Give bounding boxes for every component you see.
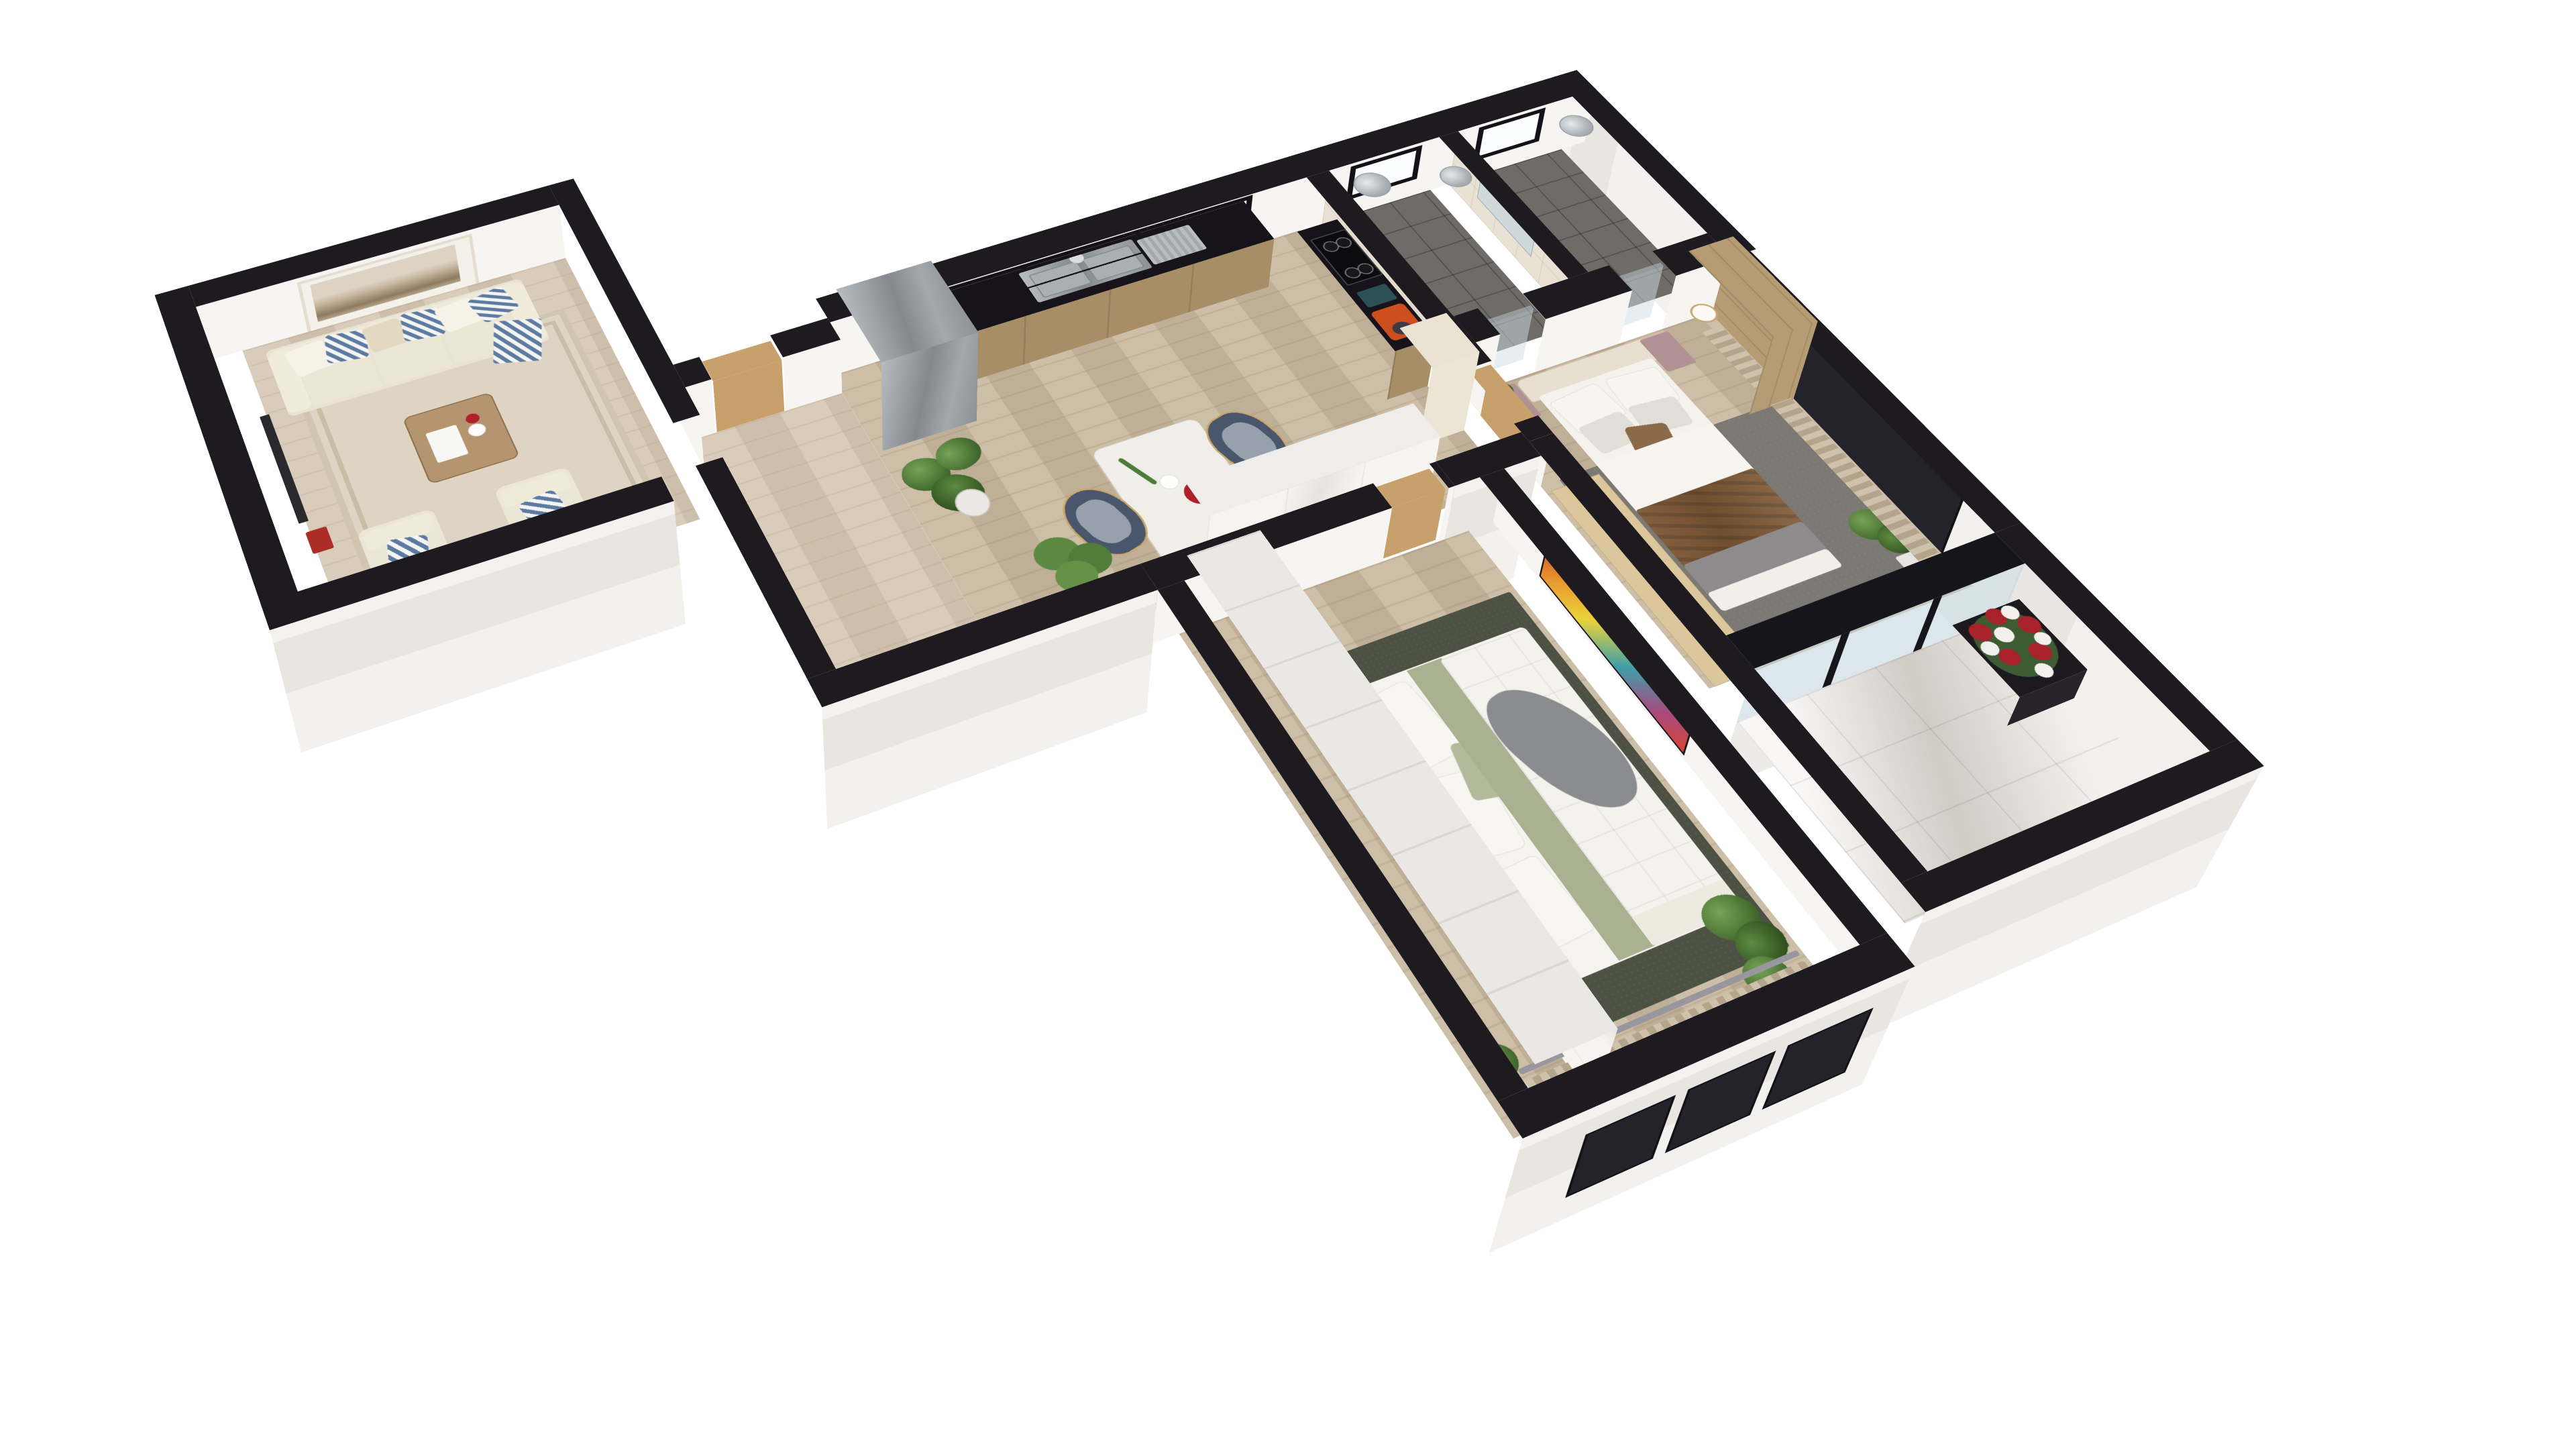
wall-foyer-north-right	[770, 318, 841, 358]
flower-vase	[466, 421, 488, 438]
facade-window	[1665, 1051, 1776, 1153]
facade-window	[1565, 1095, 1676, 1198]
table-vase	[1156, 472, 1183, 491]
apartment-3d-floorplan-render	[0, 0, 2576, 1449]
facade-window	[1762, 1008, 1873, 1110]
viewport	[0, 0, 2576, 1449]
sofa-striped-throw	[493, 318, 541, 364]
magazine	[425, 425, 469, 463]
entry-door	[702, 341, 782, 381]
green-branch	[1118, 458, 1159, 485]
